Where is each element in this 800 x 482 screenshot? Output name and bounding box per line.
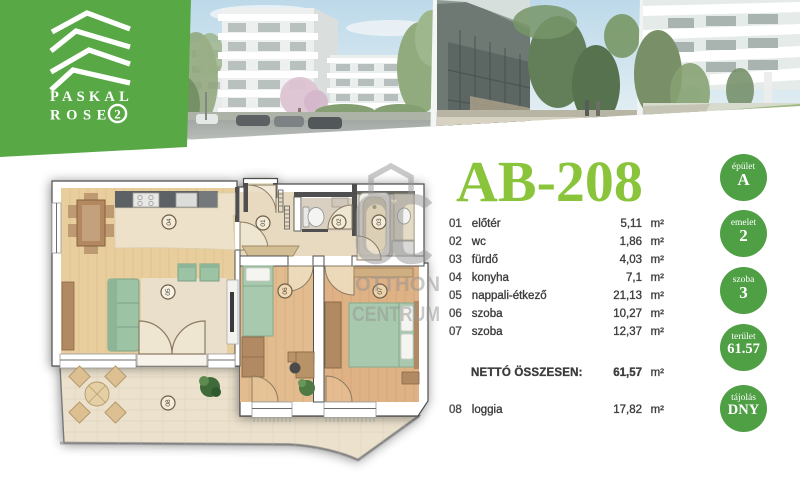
svg-text:CENTRUM: CENTRUM bbox=[352, 303, 440, 326]
svg-text:02: 02 bbox=[336, 218, 343, 226]
svg-text:06: 06 bbox=[282, 287, 289, 295]
svg-text:03: 03 bbox=[376, 218, 383, 226]
svg-text:OTTHON: OTTHON bbox=[355, 273, 440, 296]
svg-text:05: 05 bbox=[165, 288, 172, 296]
svg-text:08: 08 bbox=[165, 399, 172, 407]
svg-text:01: 01 bbox=[260, 219, 267, 227]
svg-text:04: 04 bbox=[166, 218, 173, 226]
